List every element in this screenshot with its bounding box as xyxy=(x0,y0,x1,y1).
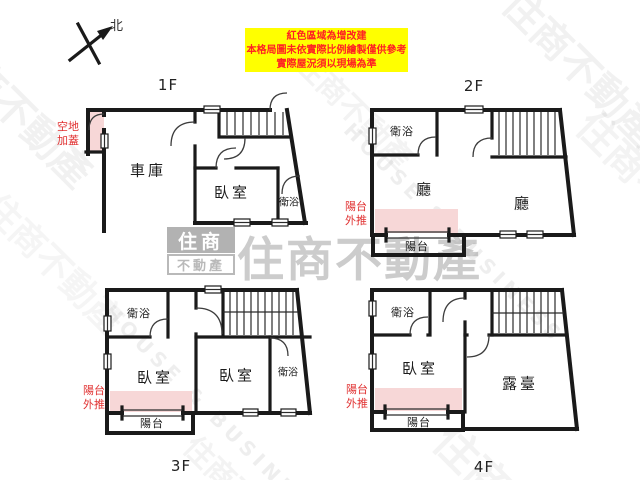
room-label-3f-bath-right: 衛浴 xyxy=(278,364,298,379)
floor-2f-title: 2F xyxy=(464,77,484,95)
window-symbol xyxy=(465,106,483,113)
window-symbol xyxy=(243,409,258,416)
annotation-4f-balcony-pushout: 陽台 外推 xyxy=(346,383,368,412)
floor-1f-plan xyxy=(86,93,306,231)
room-label-4f-bedroom: 臥室 xyxy=(402,358,438,379)
floor-1f-title: 1F xyxy=(158,76,178,94)
window-symbol xyxy=(281,409,296,416)
window-symbol xyxy=(369,128,376,144)
floor-4f-title: 4F xyxy=(474,458,494,476)
room-label-2f-hall-left: 廳 xyxy=(416,179,434,200)
room-label-3f-bath-left: 衛浴 xyxy=(127,305,151,321)
window-symbol xyxy=(369,354,376,369)
window-symbol xyxy=(104,354,111,369)
balcony-label-2f: 陽台 xyxy=(405,238,429,254)
north-label: 北 xyxy=(110,15,123,34)
floor-3f-title: 3F xyxy=(171,457,191,475)
floorplan-page: 住商不動產 住商不動產 住商不動產 住商不動產 住商不動產 HOUSE & BU… xyxy=(0,0,640,480)
room-label-3f-bedroom-left: 臥室 xyxy=(137,367,173,388)
window-symbol xyxy=(272,219,288,226)
window-symbol xyxy=(234,219,250,226)
balcony-label-3f: 陽台 xyxy=(140,415,164,431)
annotation-3f-balcony-pushout: 陽台 外推 xyxy=(83,384,105,413)
north-arrow xyxy=(70,24,113,63)
disclaimer-line-1: 紅色區域為增改建 xyxy=(245,30,408,44)
window-symbol xyxy=(527,231,543,238)
room-label-1f-bath: 衛浴 xyxy=(279,194,299,209)
window-symbol xyxy=(369,301,376,316)
disclaimer-line-3: 實際屋況須以現場為準 xyxy=(245,58,408,72)
window-symbol xyxy=(205,286,221,293)
room-label-1f-garage: 車庫 xyxy=(130,160,166,181)
room-label-1f-bedroom: 臥室 xyxy=(214,182,250,203)
disclaimer-box: 紅色區域為增改建 本格局圖未依實際比例繪製僅供參考 實際屋況須以現場為準 xyxy=(245,28,408,72)
annotation-1f-vacant-addition: 空地 加蓋 xyxy=(57,120,79,149)
room-label-4f-terrace: 露臺 xyxy=(502,373,538,394)
disclaimer-line-2: 本格局圖未依實際比例繪製僅供參考 xyxy=(245,44,408,58)
window-symbol xyxy=(101,134,108,148)
balcony-label-4f: 陽台 xyxy=(407,414,431,430)
room-label-2f-bath: 衛浴 xyxy=(390,123,414,139)
window-symbol xyxy=(104,316,111,331)
room-label-3f-bedroom-right: 臥室 xyxy=(219,365,255,386)
room-label-4f-bath: 衛浴 xyxy=(391,304,415,320)
window-symbol xyxy=(500,231,516,238)
window-symbol xyxy=(204,106,220,113)
room-label-2f-hall-right: 廳 xyxy=(514,193,532,214)
annotation-2f-balcony-pushout: 陽台 外推 xyxy=(345,200,367,229)
